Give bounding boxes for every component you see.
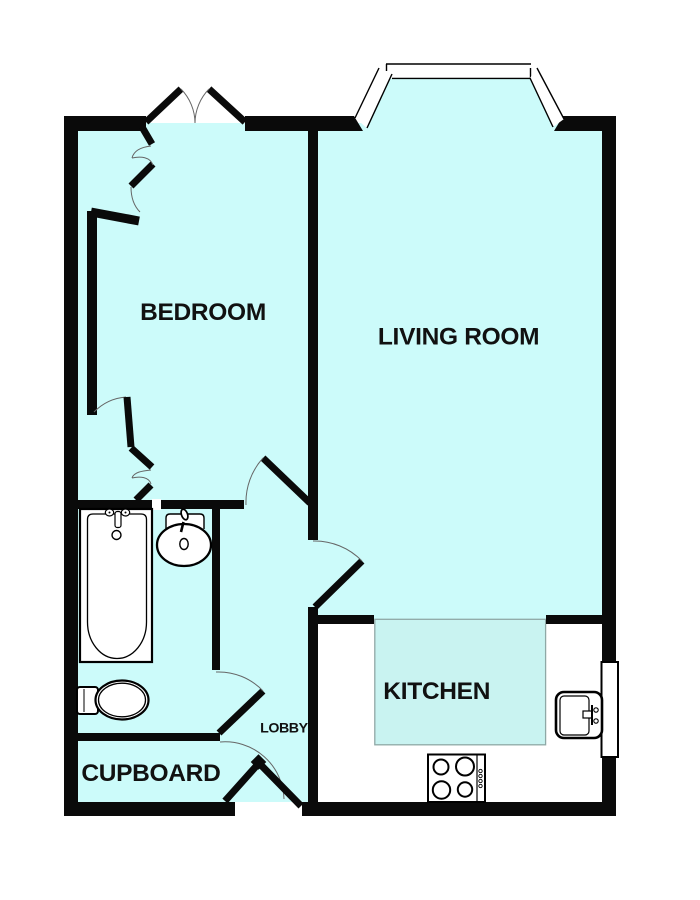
svg-text:KITCHEN: KITCHEN bbox=[383, 678, 490, 705]
svg-text:BEDROOM: BEDROOM bbox=[140, 299, 266, 326]
svg-text:LOBBY: LOBBY bbox=[260, 721, 309, 737]
svg-text:LIVING ROOM: LIVING ROOM bbox=[378, 323, 539, 350]
svg-text:CUPBOARD: CUPBOARD bbox=[81, 760, 220, 787]
